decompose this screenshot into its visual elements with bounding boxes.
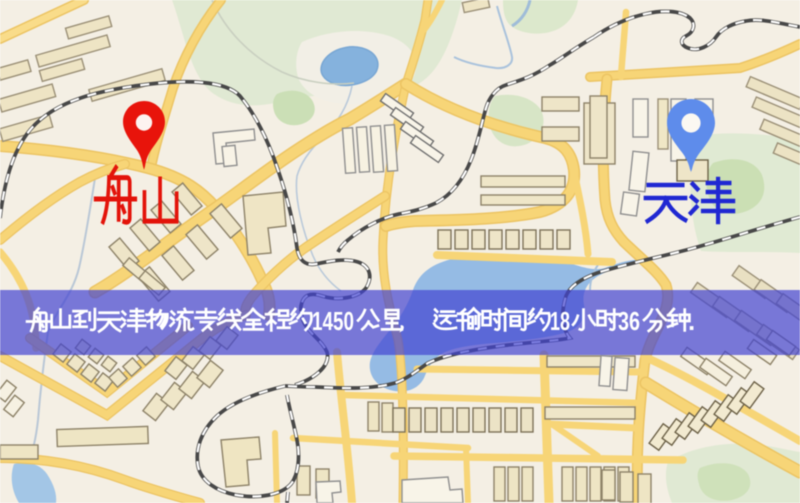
svg-text:1450: 1450 bbox=[312, 306, 354, 336]
svg-text:18: 18 bbox=[550, 306, 570, 336]
svg-text:.: . bbox=[688, 306, 695, 336]
svg-text:36: 36 bbox=[618, 306, 640, 336]
